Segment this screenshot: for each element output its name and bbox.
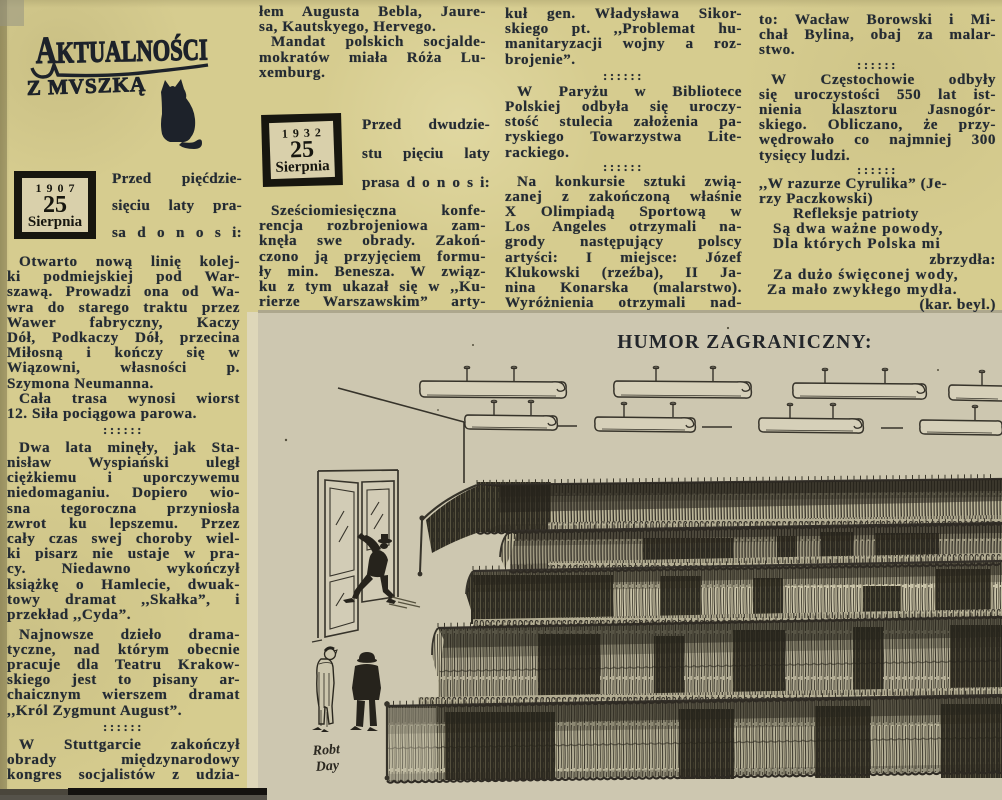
svg-text:AKTUALNOŚCI: AKTUALNOŚCI xyxy=(35,26,208,72)
svg-text:HUMOR ZAGRANICZNY:: HUMOR ZAGRANICZNY: xyxy=(617,332,872,353)
svg-text:Day: Day xyxy=(314,758,340,775)
svg-text:Robt: Robt xyxy=(311,742,341,759)
svg-text:Z MVSZKĄ: Z MVSZKĄ xyxy=(26,72,146,100)
